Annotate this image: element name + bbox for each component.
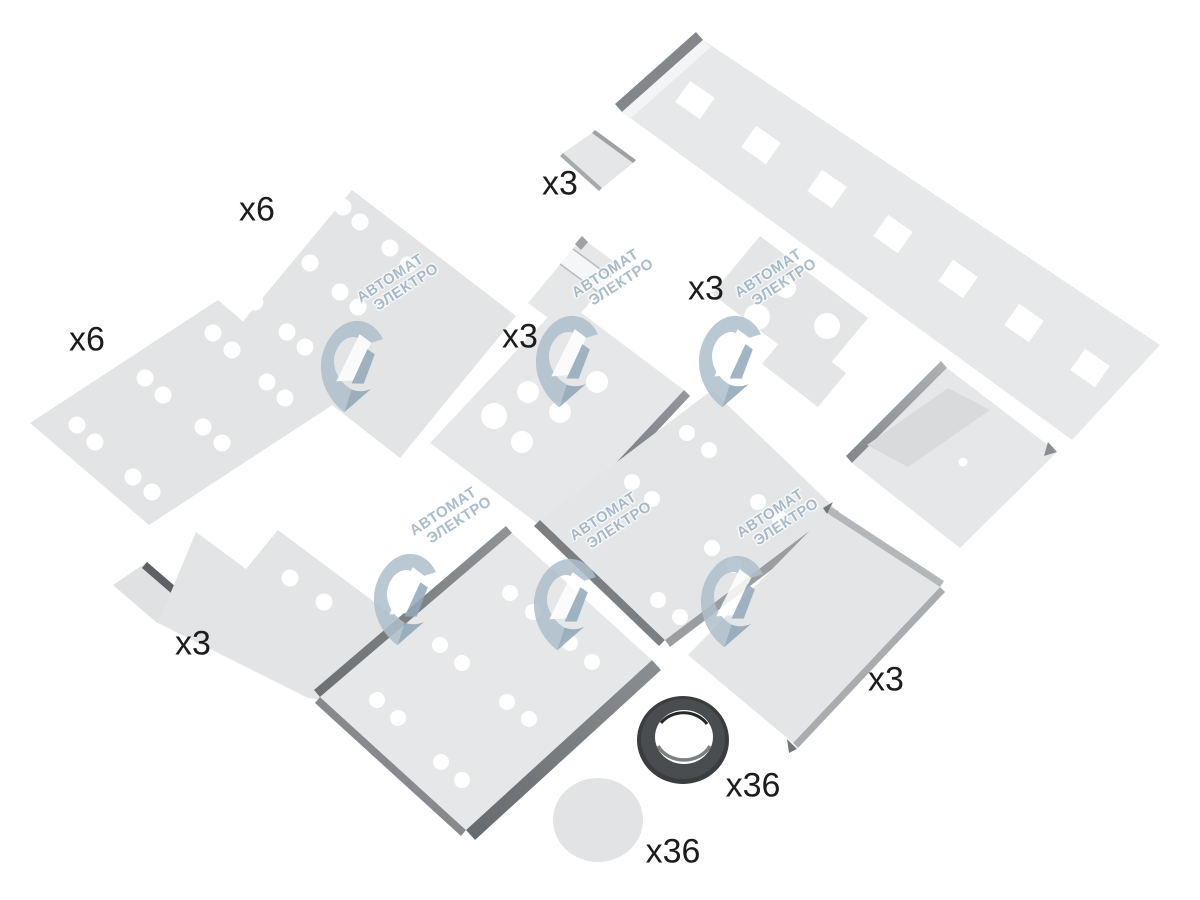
qty-label-plate-left: x6 (69, 321, 105, 360)
box-hole (959, 458, 968, 467)
part-strip-long (615, 32, 1160, 440)
part-grommet-ring (637, 696, 729, 784)
qty-label-disc: x36 (646, 833, 701, 872)
qty-label-channel: x3 (542, 165, 578, 204)
part-disc (553, 778, 643, 862)
parts-drawing (0, 0, 1200, 900)
qty-label-l-plate: x3 (175, 625, 211, 664)
qty-label-tray: x3 (868, 661, 904, 700)
qty-label-bracket: x3 (502, 318, 538, 357)
qty-label-ring: x36 (726, 767, 781, 806)
qty-label-t-plate: x3 (688, 270, 724, 309)
qty-label-plate-top: x6 (239, 191, 275, 230)
parts-kit-illustration: АВТОМАТ ЭЛЕКТРО АВТОМАТ ЭЛЕКТРО АВТОМАТ … (0, 0, 1200, 900)
